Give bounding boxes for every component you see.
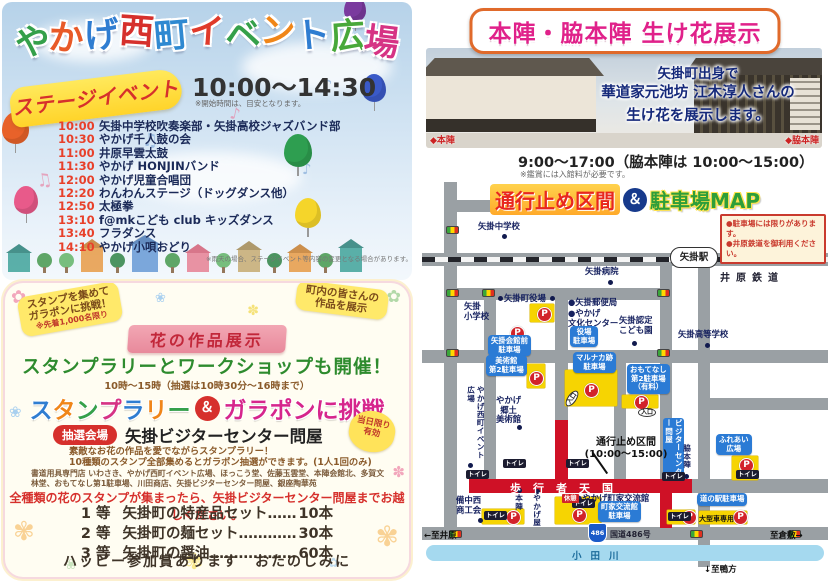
- road: [710, 398, 828, 410]
- map-title: 通行止め区間 ＆ 駐車場MAP: [422, 184, 828, 215]
- traffic-signal-icon: [657, 349, 670, 357]
- direction-east: 至倉敷→: [770, 529, 803, 541]
- poi-elementary-school: 矢掛 小学校: [464, 302, 489, 321]
- page-title: やかげ西町イベント広場: [2, 14, 412, 54]
- prize-dots: …………: [238, 525, 296, 544]
- closure-note: 通行止め区間 (10:00〜15:00): [580, 437, 672, 461]
- schedule-time: 11:00: [58, 146, 91, 160]
- right-page: 本陣・脇本陣 生け花展示 矢掛町出身で 華道家元池坊 江木淳人さんの 生け花を展…: [422, 0, 828, 584]
- parking-map-title: 駐車場MAP: [650, 185, 760, 214]
- schedule-act: やかげ小唄おどり: [99, 239, 191, 255]
- ibara-railway-label: 井原鉄道: [720, 269, 784, 284]
- parking-icon: P: [529, 371, 544, 386]
- schedule-row: 10:00 矢掛中学校吹奏楽部・矢掛高校ジャズバンド部: [58, 118, 341, 131]
- poi-honjin: 本陣: [514, 494, 524, 510]
- parking-label-marunaka: マルナカ跡 駐車場: [573, 352, 616, 373]
- prize-rank: 2 等: [81, 525, 111, 544]
- poi-dot: [608, 280, 613, 285]
- schedule-note: ※雨天の場合、ステージイベント等内容の変更となる場合があります。: [206, 253, 412, 263]
- collect-stamps-badge: スタンプを集めて ガラポンに挑戦！ ※先着1,000名限り: [16, 283, 123, 338]
- entrance-label: 入口: [638, 408, 656, 417]
- caption-line: 矢掛町出身で: [574, 62, 822, 82]
- stamp-rally-text: スタンプラリー: [30, 391, 191, 425]
- traffic-signal-icon: [446, 349, 459, 357]
- schedule-time: 11:30: [58, 159, 91, 173]
- poi-art-museum: やかげ 郷土 美術館: [496, 396, 521, 425]
- prize-count: 30本: [298, 525, 333, 544]
- caption-line: 生け花を展示します。: [574, 104, 822, 125]
- poi-yakage-ya: やかげ屋: [532, 494, 542, 526]
- tree-shape: [110, 253, 125, 268]
- ampersand-badge: ＆: [195, 396, 220, 421]
- parking-icon: P: [506, 510, 521, 525]
- desc-line: 10種類のスタンプ全部集めるとガラポン抽選ができます。(1人1回のみ): [69, 457, 372, 468]
- road: [692, 479, 828, 493]
- tree-shape: [59, 253, 74, 268]
- parking-label-michinoeki: 道の駅駐車場: [697, 493, 747, 506]
- parking-label-museum-2: 美術館 第2駐車場: [486, 355, 527, 376]
- left-page: ♪ ♫ ♪ ♪ ♫ ♪ やかげ西町イベント広場 ステージイベント 10:00〜1…: [0, 0, 414, 584]
- time-note: ※開始時間は、目安となります。: [195, 98, 305, 109]
- parking-icon: P: [537, 307, 552, 322]
- house-shape: [8, 253, 30, 272]
- venue-name: 矢掛ビジターセンター問屋: [125, 423, 323, 447]
- poi-dot: [502, 234, 507, 239]
- music-note-icon: ♫: [34, 169, 54, 192]
- poi-chamber-of-commerce: 備中西 商工会: [456, 496, 481, 515]
- prize-rank: 1 等: [81, 505, 111, 524]
- caption-line: 華道家元池坊 江木淳人さんの: [574, 82, 822, 104]
- poi-yakage-hospital: 矢掛病院: [585, 267, 619, 277]
- oda-river-label: 小田川: [572, 548, 628, 562]
- toilet-label: トイレ: [662, 472, 685, 481]
- prize-dots: ……: [267, 505, 296, 524]
- traffic-signal-icon: [657, 289, 670, 297]
- stamp-description: 素敵なお花の作品を愛でながらスタンプラリー！ 10種類のスタンプ全部集めるとガラ…: [69, 446, 372, 468]
- closed-road: [555, 420, 568, 486]
- poi-dot: [498, 296, 503, 301]
- yakage-station-label: 矢掛駅: [670, 247, 718, 268]
- stamp-rally-section: ✿ ❀ ✽ ✿ ❀ ✽ ✾ ✾ ✾ ❀ ✿ スタンプを集めて ガラポンに挑戦！ …: [5, 283, 409, 577]
- prize-row: 1 等 矢掛町の特産品セット …… 10本: [81, 505, 333, 524]
- photo-caption: 矢掛町出身で 華道家元池坊 江木淳人さんの 生け花を展示します。: [574, 62, 822, 125]
- lottery-venue: 抽選会場 矢掛ビジターセンター問屋: [53, 423, 323, 447]
- desc-line: 素敵なお花の作品を愛でながらスタンプラリー！: [69, 446, 372, 457]
- workshop-headline: スタンプラリーとワークショップも開催！: [5, 353, 409, 379]
- schedule-time: 13:40: [58, 226, 91, 240]
- poi-dot: [550, 296, 555, 301]
- poi-high-school: 矢掛高等学校: [678, 330, 728, 340]
- poi-post-office: ●矢掛郵便局: [568, 298, 617, 308]
- toilet-label: トイレ: [484, 511, 507, 520]
- ampersand-badge: ＆: [623, 188, 647, 212]
- toilet-label: トイレ: [503, 459, 526, 468]
- honjin-label: ◆本陣: [430, 133, 455, 146]
- poi-yakage-junior-high: 矢掛中学校: [478, 222, 520, 232]
- poi-town-hall: 矢掛町役場: [504, 294, 546, 304]
- traffic-signal-icon: [482, 289, 495, 297]
- schedule-time: 13:10: [58, 213, 91, 227]
- direction-west: ←至井原: [424, 529, 457, 541]
- parking-label-kaikan-mae: 矢掛会館前 駐車場: [488, 335, 531, 356]
- parking-notice: ●駐車場には限りがあります。 ●井原鉄道を御利用ください。: [720, 214, 826, 264]
- rest-tag: 休憩: [562, 494, 579, 503]
- traffic-signal-icon: [446, 226, 459, 234]
- flower-works-ribbon: 花の作品展示: [127, 325, 287, 353]
- schedule-time: 12:50: [58, 199, 91, 213]
- road: [444, 288, 672, 300]
- participation-note: ハッピー参加賞あります おたのしみに: [5, 551, 409, 571]
- notice-line: ●井原鉄道を御利用ください。: [726, 239, 820, 259]
- flower-icon: ✽: [392, 463, 405, 481]
- schedule-row: 11:30 やかげ HONJINバンド: [58, 158, 341, 171]
- road: [422, 350, 828, 363]
- tree-shape: [165, 253, 180, 268]
- parking-icon: P: [584, 383, 599, 398]
- parking-label-omotenashi-2: おもてなし 第2駐車場 （有料）: [627, 364, 670, 394]
- traffic-signal-icon: [690, 530, 703, 538]
- schedule-row: 13:10 f@mkこども club キッズダンス: [58, 212, 341, 225]
- fureai-plaza-label: ふれあい 広場: [716, 434, 752, 455]
- poi-dot: [478, 518, 483, 523]
- flower-icon: ✿: [387, 287, 401, 307]
- stage-schedule: 10:00 矢掛中学校吹奏楽部・矢掛高校ジャズバンド部 10:30 やかげ千人鼓…: [58, 118, 341, 252]
- route-486-shield: 486: [588, 523, 607, 543]
- flower-icon: ❀: [155, 291, 166, 306]
- schedule-time: 12:00: [58, 173, 91, 187]
- schedule-row: 11:00 井原早雲太鼓: [58, 145, 341, 158]
- prize-name: 矢掛町の特産品セット: [122, 505, 267, 524]
- route-486-label: 国道486号: [610, 529, 651, 540]
- poi-dot: [468, 463, 473, 468]
- parking-label-yakuba: 役場 駐車場: [570, 326, 598, 347]
- schedule-time: 10:30: [58, 132, 91, 146]
- poi-kodomo-en: 矢掛認定 こども園: [619, 316, 653, 335]
- stamp-locations: 書道用具専門店 いわさき、やかげ西町イベント広場、ほっこう堂、佐藤玉雲堂、本陣会…: [31, 469, 385, 488]
- schedule-time: 10:00: [58, 119, 91, 133]
- toilet-label: トイレ: [668, 512, 691, 521]
- poi-dot: [517, 425, 522, 430]
- poi-event-plaza: やかげ西町イベント広場: [466, 386, 485, 464]
- direction-south: ↓至鴨方: [704, 563, 737, 575]
- venue-tag: 抽選会場: [53, 425, 117, 445]
- parking-icon: P: [572, 508, 587, 523]
- flower-icon: ✽: [247, 303, 259, 319]
- notice-line: ●駐車場には限りがあります。: [726, 219, 820, 239]
- toilet-label: トイレ: [466, 470, 489, 479]
- town-works-badge: 町内の皆さんの 作品を展示: [294, 283, 388, 320]
- schedule-row: 12:20 わんわんステージ（ドッグダンス他）: [58, 185, 341, 198]
- toilet-label: トイレ: [736, 470, 759, 479]
- stage-event-section: ♪ ♫ ♪ ♪ ♫ ♪ やかげ西町イベント広場 ステージイベント 10:00〜1…: [2, 2, 412, 280]
- poi-waki-honjin: 脇本陣: [682, 444, 692, 468]
- tree-shape: [37, 253, 52, 268]
- closure-title: 通行止め区間: [490, 184, 620, 215]
- prize-count: 10本: [298, 505, 333, 524]
- parking-icon: P: [733, 510, 748, 525]
- stamp-hours: 10時〜15時（抽選は10時30分〜16時まで）: [5, 378, 409, 392]
- event-flyer: ♪ ♫ ♪ ♪ ♫ ♪ やかげ西町イベント広場 ステージイベント 10:00〜1…: [0, 0, 828, 584]
- schedule-time: 12:20: [58, 186, 91, 200]
- wakihonjin-label: ◆脇本陣: [785, 133, 819, 146]
- parking-label-machiya: 町家交流館 駐車場: [598, 501, 641, 522]
- ikebana-title: 本陣・脇本陣 生け花展示: [469, 8, 780, 54]
- schedule-time: 14:10: [58, 240, 91, 254]
- large-vehicle-label: 大型車専用: [699, 514, 734, 524]
- toilet-label: トイレ: [566, 459, 589, 468]
- challenge-title: スタンプラリー ＆ ガラポンに挑戦: [5, 391, 409, 425]
- prize-name: 矢掛町の麺セット: [122, 525, 238, 544]
- balloon-icon: [14, 186, 38, 214]
- schedule-row: 14:10 やかげ小唄おどり: [58, 239, 341, 252]
- traffic-signal-icon: [446, 289, 459, 297]
- prize-row: 2 等 矢掛町の麺セット ………… 30本: [81, 525, 333, 544]
- poi-dot: [705, 343, 710, 348]
- poi-dot: [632, 341, 637, 346]
